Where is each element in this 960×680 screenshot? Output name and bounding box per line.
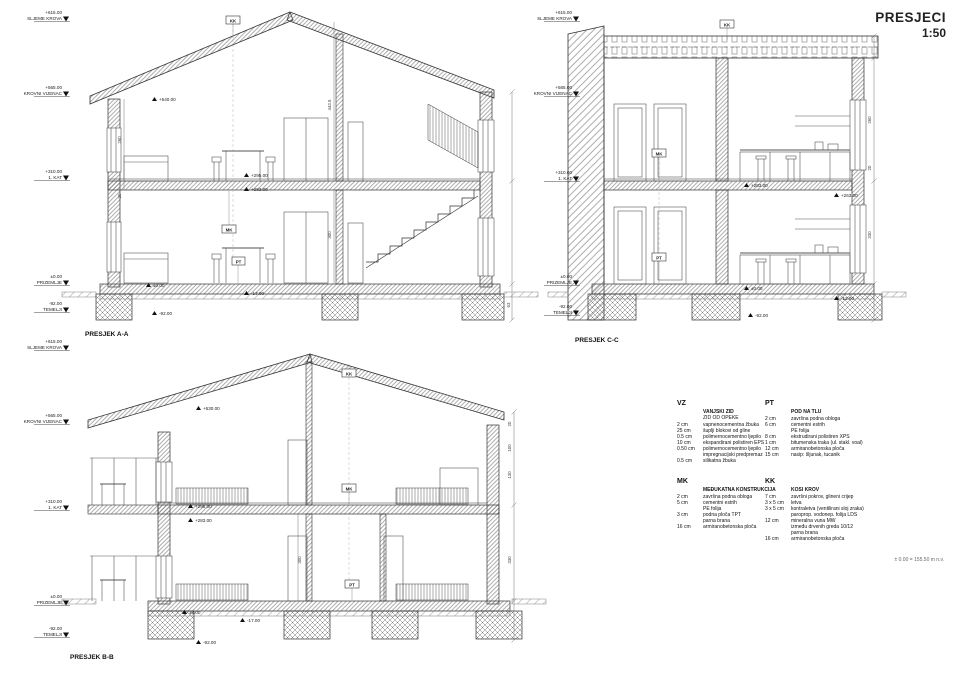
cc-callout: ±0.00 <box>751 286 763 291</box>
aa-marker-kk-label: KK <box>230 18 237 23</box>
cc-marker-pt: PT <box>652 253 666 261</box>
bb-callout: -17.00 <box>247 618 260 623</box>
level-name: KROVNI VIJENAC <box>24 91 63 96</box>
aa-marker-mk: MK <box>222 225 236 233</box>
bb-callout: ±0.00 <box>189 610 201 615</box>
legend-title: KOSI KROV <box>791 487 877 493</box>
cc-bar-stool <box>786 156 796 159</box>
bb-radiator <box>176 488 248 504</box>
level-name: PRIZEMLJE <box>37 600 62 605</box>
bb-dim: 20 <box>507 421 512 426</box>
cc-dim-lines <box>872 34 877 323</box>
aa-door-upper <box>348 122 363 181</box>
aa-chair <box>212 157 221 162</box>
aa-stair-steps <box>366 190 474 262</box>
aa-callout: +283.00 <box>251 187 268 192</box>
legend-rows: 2 cmzavršna podna obloga6 cmcementni est… <box>765 416 877 458</box>
bb-level-flags: +615.00 SLJEME KROVA +565.00 KROVNI VIJE… <box>24 339 70 638</box>
level-name: SLJEME KROVA <box>27 345 63 350</box>
level-name: PRIZEMLJE <box>37 280 62 285</box>
bb-callout: +283.00 <box>195 518 212 523</box>
level-elevation: +565.00 <box>45 85 62 90</box>
level-marker: -92.00 TEMELJI <box>34 301 70 313</box>
level-name: KROVNI VIJENAC <box>534 91 573 96</box>
aa-stair-balustrade <box>428 104 478 168</box>
aa-callout: +540.00 <box>159 97 176 102</box>
level-name: 1. KAT <box>558 176 572 181</box>
level-elevation: +310.00 <box>555 170 572 175</box>
sections-linework: KK MK PT +540.00 +295.00 +283.00 ±0.00 -… <box>0 0 960 680</box>
level-name: KROVNI VIJENAC <box>24 419 63 424</box>
aa-callouts: +540.00 +295.00 +283.00 ±0.00 -17.00 -92… <box>146 97 268 316</box>
cc-dim: 330 <box>867 231 872 239</box>
sheet-title-text: PRESJECI <box>875 10 946 25</box>
aa-marker-mk-label: MK <box>226 227 234 232</box>
aa-chair <box>212 254 221 259</box>
level-elevation: +565.00 <box>45 413 62 418</box>
materials-legend: VZ VANJSKI ZID ZID OD OPEKE 2 cmvapnenoc… <box>677 400 897 550</box>
level-elevation: -92.00 <box>49 626 62 631</box>
cc-kitchen-cabinets-ground <box>740 255 850 284</box>
level-marker: +310.00 1. KAT <box>34 169 70 181</box>
bb-radiator <box>176 584 248 600</box>
level-name: TEMELJI <box>43 632 62 637</box>
level-name: TEMELJI <box>553 310 572 315</box>
bb-callout: -92.00 <box>203 640 216 645</box>
bb-furniture-upper <box>176 440 478 505</box>
cc-roof-gable-band <box>568 26 604 320</box>
aa-dim-lines <box>124 22 515 323</box>
bb-balcony-slab <box>88 505 158 514</box>
bb-callout: +295.00 <box>195 504 212 509</box>
level-elevation: ±0.00 <box>51 594 63 599</box>
aa-marker-pt-label: PT <box>236 259 242 264</box>
level-marker: +310.00 1. KAT <box>34 499 70 511</box>
cc-dim-texts: 260 20 330 <box>867 116 872 239</box>
aa-chair <box>266 157 275 162</box>
cc-terrain-left <box>548 292 568 297</box>
level-marker: +565.00 KROVNI VIJENAC <box>24 85 70 97</box>
cc-ground-slab <box>592 284 874 294</box>
aa-level-flags: +615.00 SLJEME KROVA +565.00 KROVNI VIJE… <box>24 10 70 313</box>
level-elevation: +310.00 <box>45 499 62 504</box>
drawing-sheet: KK MK PT +540.00 +295.00 +283.00 ±0.00 -… <box>0 0 960 680</box>
bb-marker-pt: PT <box>345 580 359 588</box>
aa-wall-center-upper <box>336 34 343 181</box>
aa-terrain-right <box>504 292 538 297</box>
bb-callout: +630.00 <box>203 406 220 411</box>
cc-marker-kk: KK <box>720 20 734 28</box>
bb-door-upper <box>288 440 307 505</box>
bb-dim: 330 <box>507 556 512 564</box>
level-marker: +615.00 SLJEME KROVA <box>27 10 70 22</box>
bb-dim: 100 <box>507 444 512 452</box>
aa-marker-pt: PT <box>232 257 245 265</box>
bb-marker-kk-label: KK <box>346 371 353 376</box>
level-marker: -92.00 TEMELJI <box>34 626 70 638</box>
aa-sofa-upper <box>124 156 168 181</box>
bb-roof-right <box>307 354 504 420</box>
bb-marker-mk: MK <box>342 484 356 492</box>
level-elevation: +615.00 <box>45 339 62 344</box>
aa-furniture-ground <box>124 212 363 283</box>
bb-foundation-4 <box>476 611 522 639</box>
bb-ground-slab <box>148 601 510 611</box>
cc-marker-mk-label: MK <box>656 151 664 156</box>
cc-callout: -12.00 <box>841 296 854 301</box>
level-name: SLJEME KROVA <box>537 16 573 21</box>
aa-sofa-ground <box>124 253 168 283</box>
cc-glazed-door <box>614 104 646 181</box>
cc-terrain-right <box>882 292 906 297</box>
cc-wall-center-lower <box>716 190 728 284</box>
cc-foundation-left <box>588 294 636 320</box>
aa-foundation-right <box>462 294 504 320</box>
legend-code: PT <box>765 400 877 407</box>
cc-dim: 20 <box>867 165 872 170</box>
cc-bar-stool <box>756 259 766 262</box>
aa-gravel-layer <box>100 294 500 299</box>
cc-callout: +283.00 <box>751 183 768 188</box>
legend-title: POD NA TLU <box>791 409 877 415</box>
section-label-cc: PRESJEK C-C <box>575 337 619 344</box>
level-elevation: ±0.00 <box>51 274 63 279</box>
cc-dim: 260 <box>867 116 872 124</box>
level-elevation: +615.00 <box>45 10 62 15</box>
level-elevation: +310.00 <box>45 169 62 174</box>
bb-marker-mk-label: MK <box>346 486 354 491</box>
bb-roof-left <box>88 354 312 428</box>
aa-callout: -92.00 <box>159 311 172 316</box>
legend-block-kk: KK KOSI KROV 7 cmzavršni pokrov, glineni… <box>765 478 877 542</box>
legend-row: 15 cmnasip: šljunak, tucanik <box>765 452 877 458</box>
bb-radiator <box>396 584 468 600</box>
sheet-scale: 1:50 <box>875 26 946 40</box>
bb-foundation-2 <box>284 611 330 639</box>
aa-callout: -17.00 <box>251 291 264 296</box>
level-elevation: ±0.00 <box>561 274 573 279</box>
aa-dim: 443.5 <box>327 99 332 111</box>
aa-dim: 63 <box>506 302 511 307</box>
cc-marker-mk: MK <box>652 149 666 157</box>
cc-wall-center-upper <box>716 58 728 181</box>
bb-furniture-ground <box>176 536 468 601</box>
level-elevation: +615.00 <box>555 10 572 15</box>
legend-row: 0.5 cmsilikatna žbuka <box>677 458 789 464</box>
aa-dim: 300 <box>327 231 332 239</box>
section-label-aa: PRESJEK A-A <box>85 331 128 338</box>
level-name: TEMELJI <box>43 307 62 312</box>
bb-dim: 300 <box>297 556 302 564</box>
bb-foundation-1 <box>148 611 194 639</box>
section-label-bb: PRESJEK B-B <box>70 654 114 661</box>
bb-radiator <box>396 488 468 504</box>
legend-code: KK <box>765 478 877 485</box>
level-elevation: -92.00 <box>49 301 62 306</box>
aa-terrain-left <box>62 292 96 297</box>
aa-wall-center-lower <box>336 190 343 284</box>
legend-rows: 7 cmzavršni pokrov, glineni crijep3 x 5 … <box>765 494 877 542</box>
legend-block-pt: PT POD NA TLU 2 cmzavršna podna obloga6 … <box>765 400 877 458</box>
section-cc-drawing: KK MK PT +283.00 +263.00 ±0.00 -12.00 -9… <box>534 10 906 323</box>
legend-row: 16 cmarmiranobetonska ploča <box>765 536 877 542</box>
cc-glazed-door <box>614 207 646 284</box>
bb-door-ground <box>288 536 307 601</box>
bb-balcony <box>90 458 158 601</box>
cc-marker-kk-label: KK <box>724 22 731 27</box>
bb-foundation-3 <box>372 611 418 639</box>
cc-bar-stool <box>756 156 766 159</box>
level-name: 1. KAT <box>48 175 62 180</box>
cc-furniture-upper <box>614 104 850 181</box>
level-elevation: -92.00 <box>559 304 572 309</box>
section-aa-drawing: KK MK PT +540.00 +295.00 +283.00 ±0.00 -… <box>24 10 538 323</box>
bb-dim: 130 <box>507 471 512 479</box>
sheet-title: PRESJECI 1:50 <box>875 10 946 40</box>
aa-door-ground <box>348 223 363 283</box>
aa-marker-kk: KK <box>226 16 240 24</box>
aa-dim: 260 <box>117 136 122 144</box>
bb-wall-hall <box>380 514 386 601</box>
cc-floor-slab <box>604 181 852 190</box>
level-name: SLJEME KROVA <box>27 16 63 21</box>
cc-callout: +263.00 <box>841 193 858 198</box>
level-marker: ±0.00 PRIZEMLJE <box>34 274 70 286</box>
aa-dim: 20 <box>117 193 122 198</box>
bb-marker-kk: KK <box>342 369 356 377</box>
cc-furniture-ground <box>614 207 850 284</box>
cc-kitchen-cabinets-upper <box>740 152 850 181</box>
level-elevation: +565.00 <box>555 85 572 90</box>
aa-callout: ±0.00 <box>153 283 165 288</box>
level-marker: +615.00 SLJEME KROVA <box>537 10 580 22</box>
datum-note: ± 0.00 = 155.50 m n.v. <box>895 557 945 563</box>
level-marker: +565.00 KROVNI VIJENAC <box>24 413 70 425</box>
bb-marker-pt-label: PT <box>349 582 355 587</box>
bb-terrain-right <box>512 599 546 604</box>
cc-callout: -92.00 <box>755 313 768 318</box>
aa-furniture-upper <box>124 118 363 181</box>
aa-foundation-center <box>322 294 358 320</box>
section-bb-drawing: KK MK PT +630.00 +295.00 +283.00 ±0.00 -… <box>24 339 546 645</box>
aa-foundation-left <box>96 294 132 320</box>
cc-roof-band <box>604 36 878 58</box>
aa-chair <box>266 254 275 259</box>
cc-foundation-center <box>692 294 740 320</box>
aa-roof-left <box>90 12 293 104</box>
cc-marker-pt-label: PT <box>656 255 662 260</box>
aa-stair-stringer <box>366 196 478 268</box>
bb-wall-right <box>487 425 499 604</box>
level-name: 1. KAT <box>48 505 62 510</box>
cc-bar-stool <box>786 259 796 262</box>
level-marker: +615.00 SLJEME KROVA <box>27 339 70 351</box>
aa-callout: +295.00 <box>251 173 268 178</box>
aa-floor-slab <box>108 181 480 190</box>
aa-roof-right <box>287 12 494 98</box>
level-name: PRIZEMLJE <box>547 280 572 285</box>
